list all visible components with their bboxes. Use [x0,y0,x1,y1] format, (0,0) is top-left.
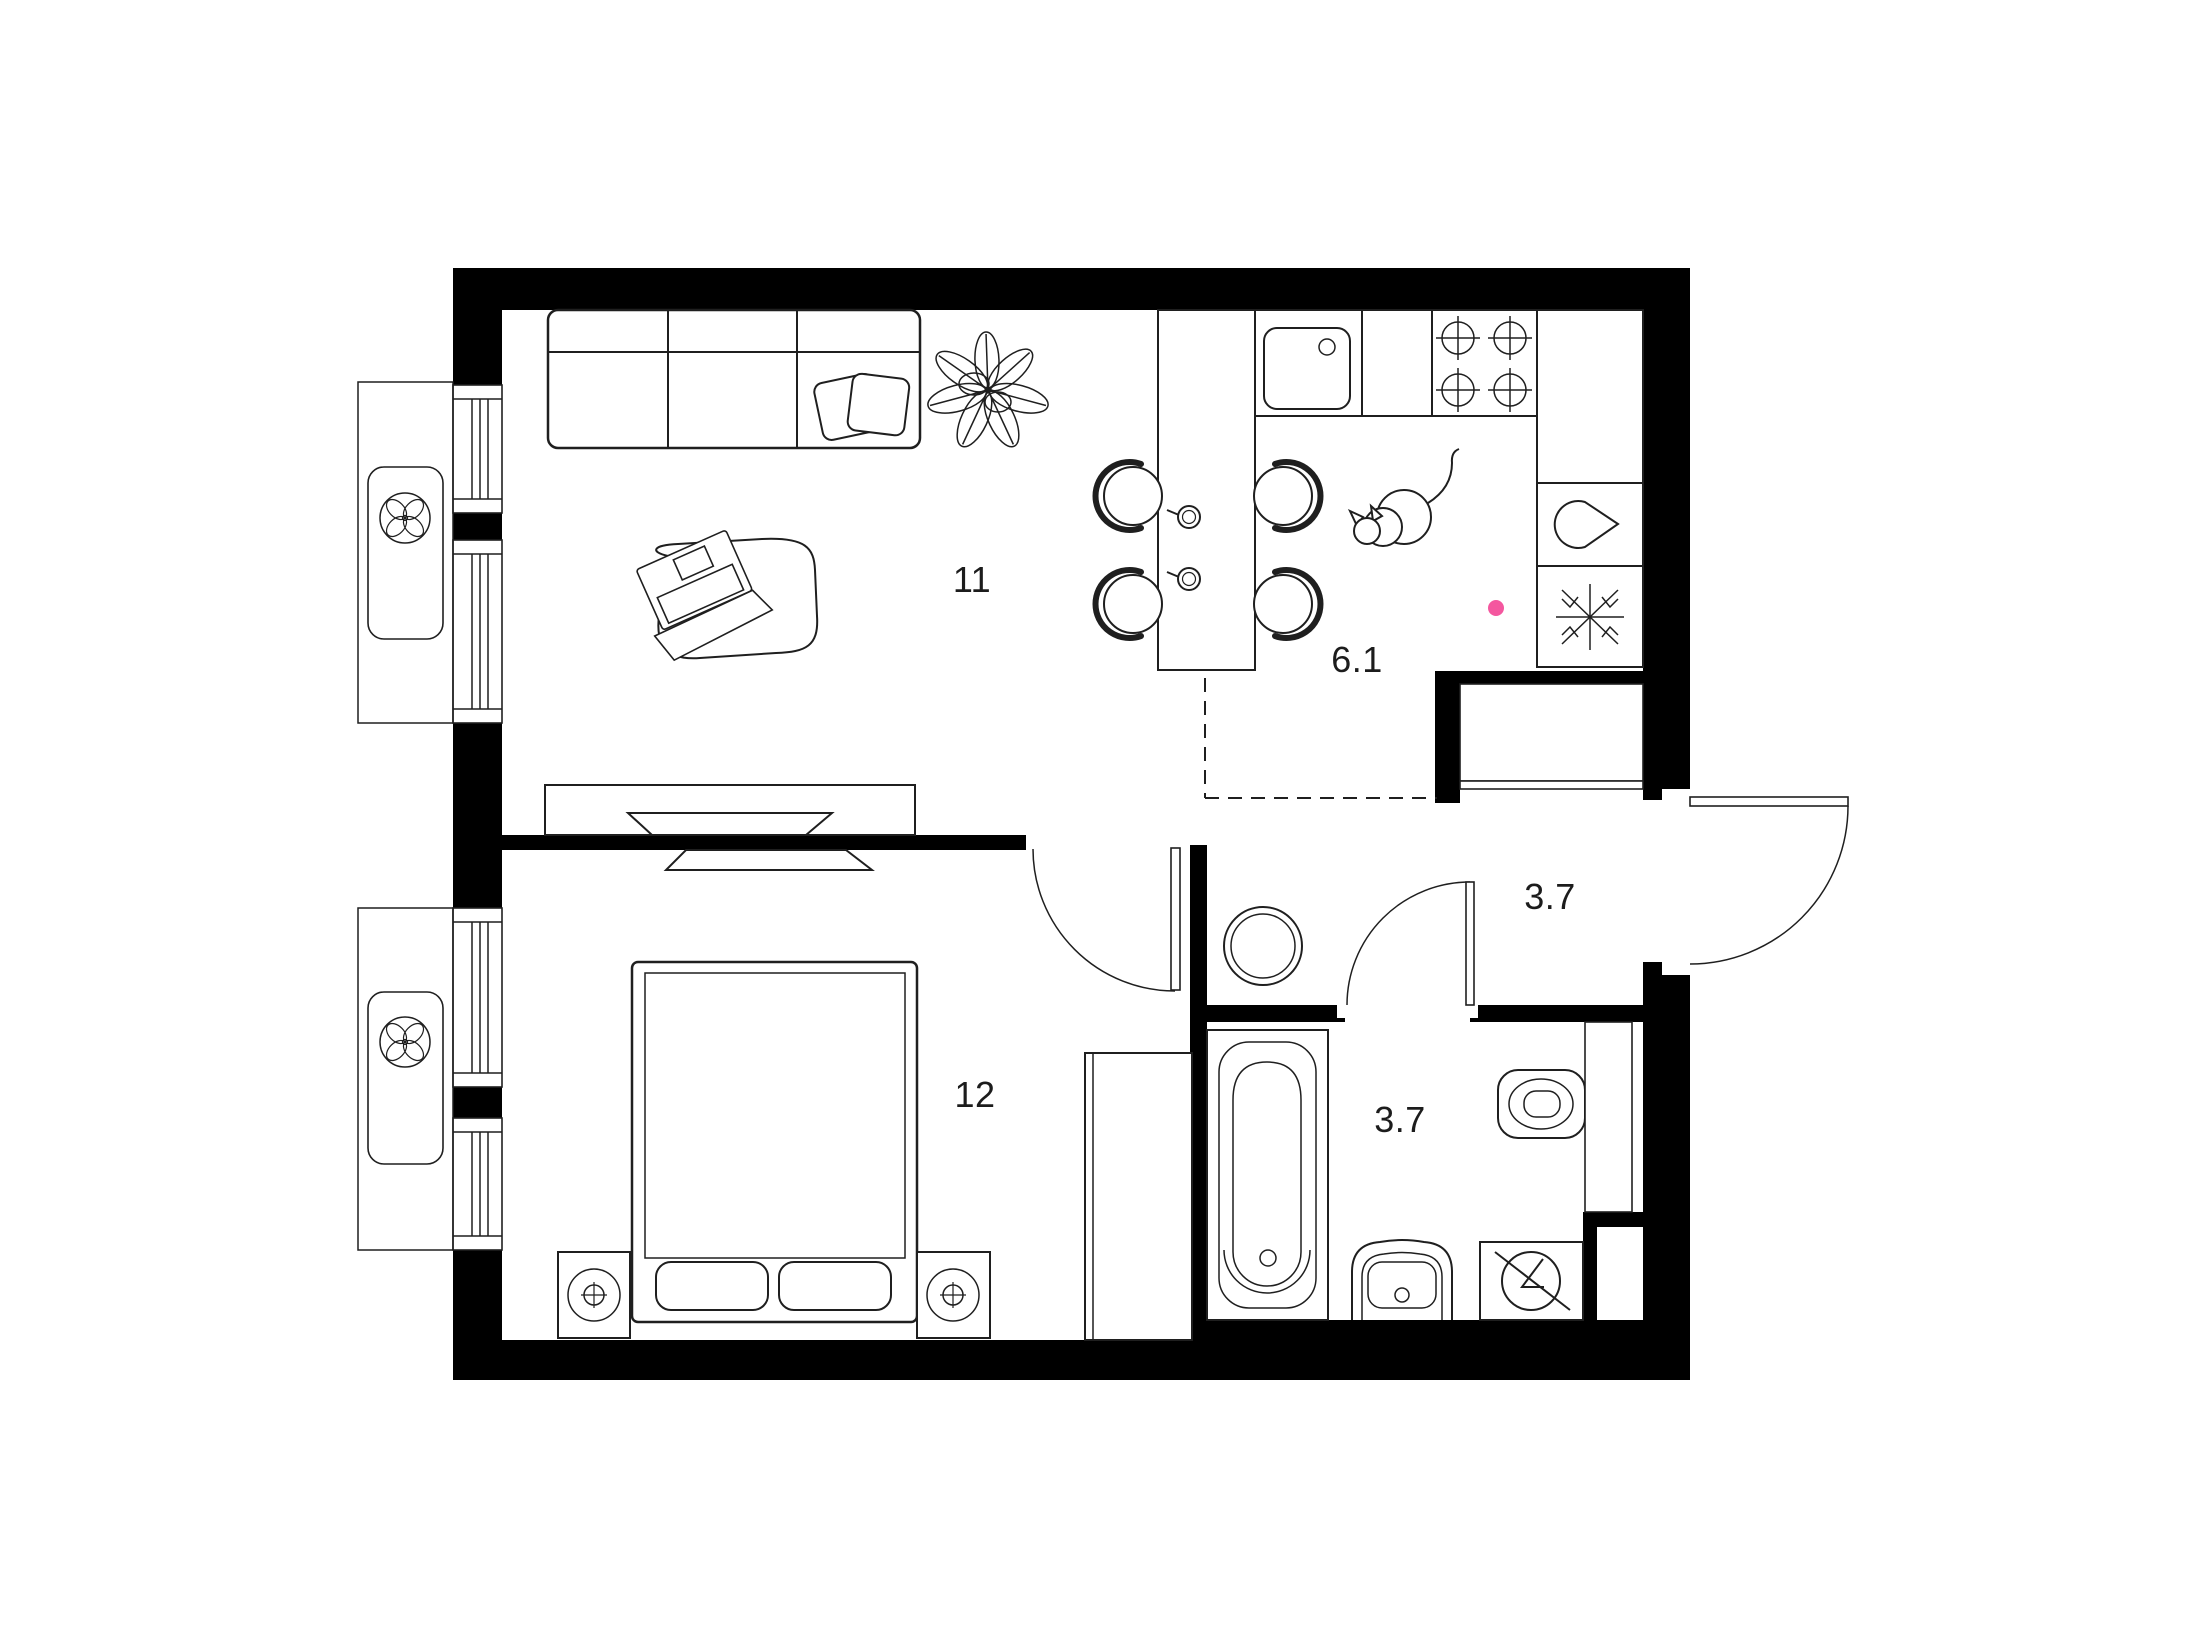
island-counter [1158,310,1255,670]
sofa-icon [548,310,920,448]
hallway [1224,684,1848,1005]
tv-icon [628,813,832,835]
window-icon [453,385,502,513]
bedroom-door-swing-icon [1033,848,1180,991]
washing-machine-icon [1480,1242,1583,1320]
pillow-icon [656,1262,768,1310]
pillow-icon [779,1262,891,1310]
balcony-bottom [358,908,453,1250]
window-icon [453,1118,502,1250]
room-label-bathroom: 3.7 [1374,1099,1426,1141]
closet-sliding-door [1460,781,1643,789]
toilet-icon [1498,1070,1585,1138]
pillow-icon [813,372,911,441]
closet [1460,684,1643,789]
cat-icon [1350,449,1459,546]
entrance-door-swing-icon [1690,797,1848,964]
kitchen-counter [1255,310,1643,667]
shaft-niche [1585,1022,1632,1212]
floor-plan-page: 11 6.1 12 3.7 3.7 [0,0,2200,1650]
entrance-door-leaf [1690,797,1848,806]
window-icon [453,908,502,1087]
nightstand [917,1252,990,1338]
sideboard-icon [545,785,915,835]
boiler-icon [1224,907,1302,985]
bathroom [1207,1022,1632,1320]
plant-icon [925,332,1052,452]
bed-icon [632,962,917,1322]
bathroom-door-swing-icon [1347,882,1474,1005]
room-label-kitchen: 6.1 [1331,639,1383,681]
bathroom-sink-icon [1352,1240,1452,1320]
room-label-living-room: 11 [953,559,991,601]
bedroom [558,848,1192,1340]
snowflake-icon [1556,584,1624,650]
dining-chair-icon [1096,570,1162,638]
coffee-table-icon [627,526,817,664]
shaft-niche [1597,1227,1632,1318]
balcony-top [358,382,453,723]
floor-plan-drawing [0,0,2200,1650]
bedroom-door-leaf [1171,848,1180,990]
nightstand [558,1252,630,1338]
dining-chair-icon [1254,570,1320,638]
tv-icon [666,850,872,870]
room-label-bedroom: 12 [954,1074,995,1116]
bathroom-door-leaf [1466,882,1474,1005]
room-label-hallway: 3.7 [1524,876,1576,918]
dining-chair-icon [1254,462,1320,530]
dining-chair-icon [1096,462,1162,530]
accent-dot-icon [1488,600,1504,616]
wardrobe [1085,1053,1192,1340]
bathtub-icon [1207,1030,1328,1320]
window-icon [453,540,502,723]
